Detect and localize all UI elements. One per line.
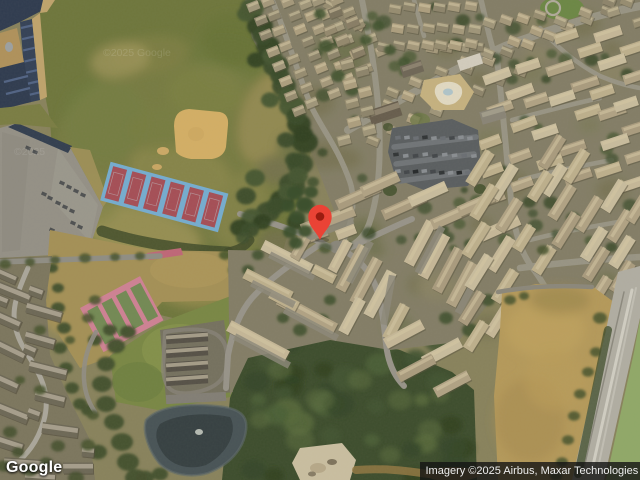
svg-text:©2025 Google: ©2025 Google bbox=[103, 47, 171, 59]
svg-text:©2025: ©2025 bbox=[14, 146, 45, 158]
